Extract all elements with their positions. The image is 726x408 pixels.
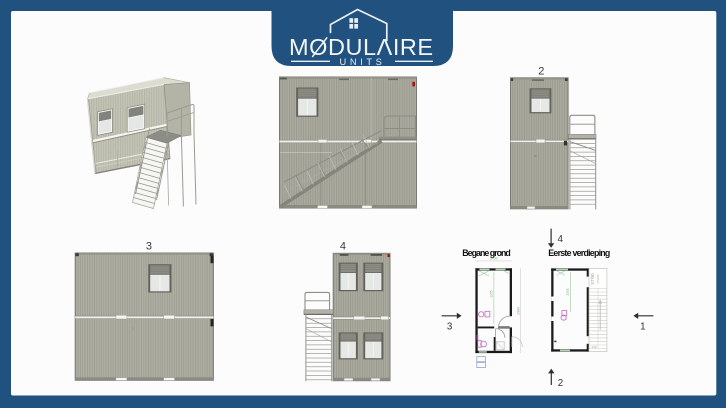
svg-text:Eerste verdieping: Eerste verdieping — [548, 248, 610, 258]
svg-text:ST/90: ST/90 — [590, 273, 595, 285]
svg-text:Begane grond: Begane grond — [462, 248, 511, 258]
svg-text:UNITS: UNITS — [340, 57, 386, 67]
svg-text:2: 2 — [558, 378, 563, 389]
svg-text:17x186: 17x186 — [596, 274, 600, 284]
svg-text:3: 3 — [447, 321, 453, 332]
svg-text:2955: 2955 — [490, 290, 494, 297]
svg-text:3: 3 — [146, 241, 152, 253]
svg-text:010: 010 — [476, 335, 480, 341]
svg-text:1: 1 — [640, 321, 645, 332]
svg-text:2955: 2955 — [566, 288, 570, 295]
svg-text:4: 4 — [340, 240, 346, 252]
svg-text:2: 2 — [538, 66, 544, 78]
svg-text:2990: 2990 — [516, 307, 520, 315]
svg-text:4: 4 — [558, 234, 564, 245]
svg-text:245: 245 — [591, 345, 596, 349]
svg-text:5450: 5450 — [490, 257, 498, 261]
